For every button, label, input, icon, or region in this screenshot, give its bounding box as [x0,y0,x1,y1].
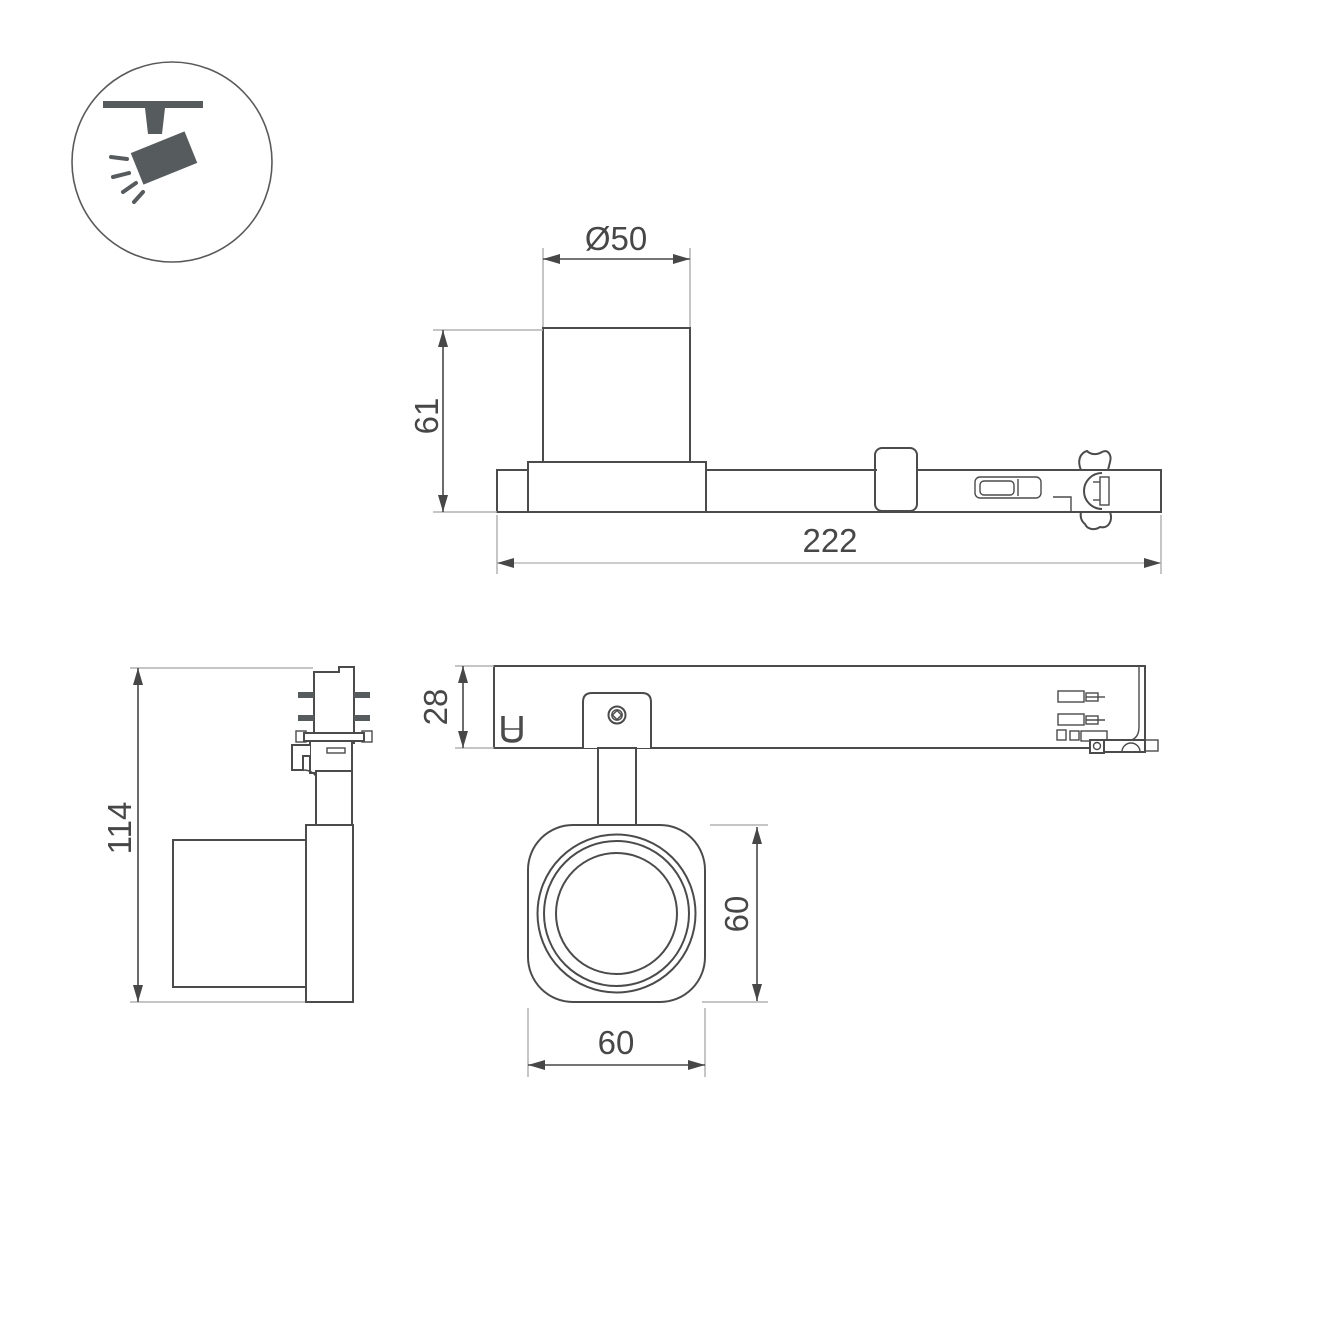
track-plug [298,667,370,743]
adapter-block [875,448,917,511]
side-view: Ø50 61 222 [408,220,1161,574]
end-view: 114 [101,667,372,1002]
dimension-label-length: 222 [802,522,857,559]
dimension-label-head-height: 60 [718,896,755,933]
head-bottom-view: 60 60 [528,825,768,1077]
lamp-head-face [528,825,705,1002]
dimension-length-222: 222 [497,515,1161,574]
dimension-head-width-60: 60 [528,1008,705,1077]
stem-top-view [598,748,636,825]
track-spotlight-icon [72,62,272,262]
dimension-height-28: 28 [417,666,494,748]
lamp-cylinder [543,328,690,462]
dimension-label-height: 61 [408,398,445,435]
technical-drawing-canvas: Ø50 61 222 [0,0,1331,1331]
dimension-head-height-60: 60 [702,825,768,1002]
mounting-plate [583,693,651,748]
top-view: 28 [417,666,1158,825]
lamp-head-side [173,825,353,1002]
stem [316,771,352,827]
lamp-base [528,462,706,512]
dimension-label-total-height: 114 [101,802,138,855]
dimension-label-head-width: 60 [598,1024,635,1061]
dimension-diameter-50: Ø50 [543,220,690,327]
dimension-label-track-height: 28 [417,689,454,726]
dimension-label-diameter: Ø50 [585,220,647,257]
